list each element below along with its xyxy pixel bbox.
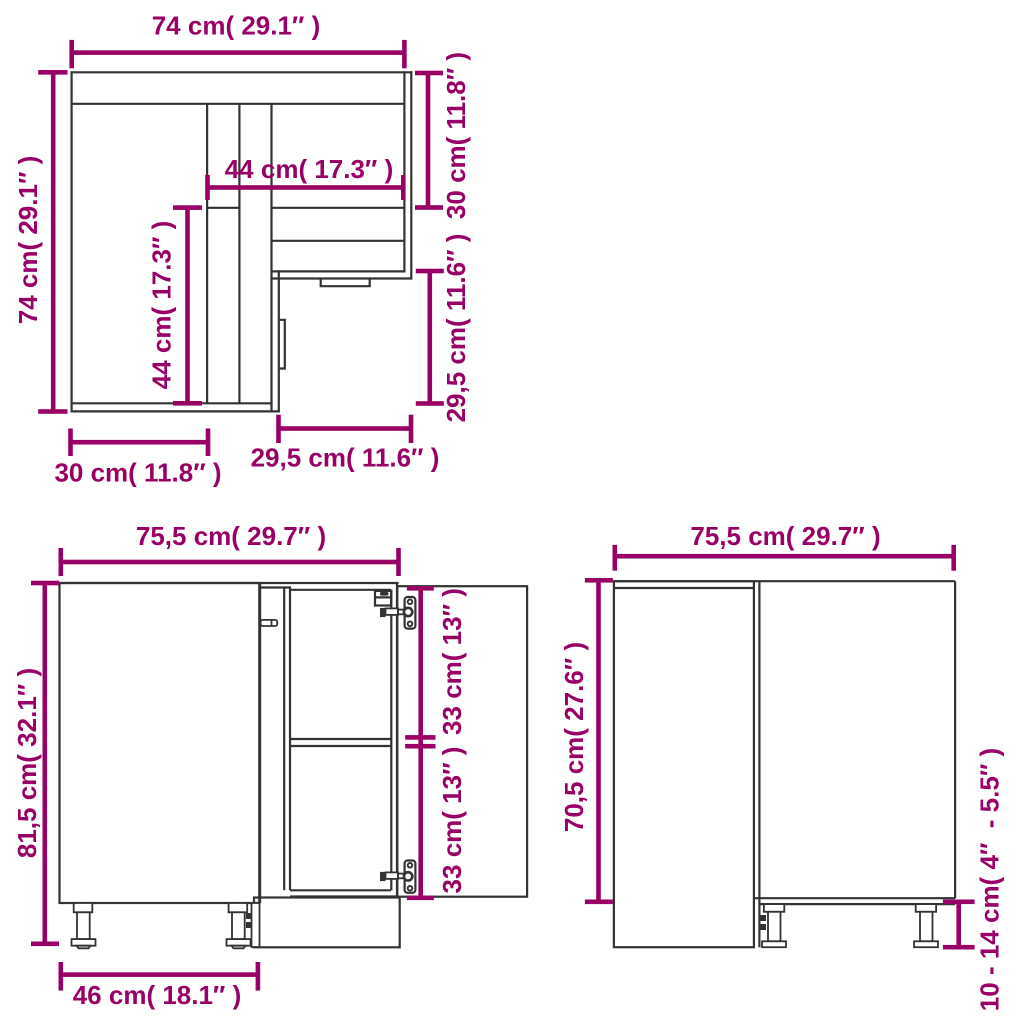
svg-text:10 - 14 cm( 4″ - 5.5″ ): 10 - 14 cm( 4″ - 5.5″ ) [975,748,1005,1011]
svg-text:46 cm( 18.1″ ): 46 cm( 18.1″ ) [73,980,242,1010]
svg-text:74 cm( 29.1″ ): 74 cm( 29.1″ ) [13,156,43,325]
svg-text:44 cm( 17.3″ ): 44 cm( 17.3″ ) [147,221,177,390]
svg-text:81,5 cm( 32.1″ ): 81,5 cm( 32.1″ ) [12,668,42,858]
svg-text:75,5 cm( 29.7″ ): 75,5 cm( 29.7″ ) [690,521,880,551]
svg-text:29,5 cm( 11.6″ ): 29,5 cm( 11.6″ ) [441,234,471,423]
svg-text:29,5 cm( 11.6″ ): 29,5 cm( 11.6″ ) [251,443,440,473]
svg-text:74 cm( 29.1″ ): 74 cm( 29.1″ ) [152,11,321,41]
svg-text:75,5 cm( 29.7″ ): 75,5 cm( 29.7″ ) [136,521,326,551]
svg-text:33 cm( 13″ ): 33 cm( 13″ ) [437,588,467,735]
svg-text:70,5 cm( 27.6″ ): 70,5 cm( 27.6″ ) [559,642,589,832]
svg-text:33 cm( 13″ ): 33 cm( 13″ ) [437,747,467,894]
svg-text:44 cm( 17.3″ ): 44 cm( 17.3″ ) [225,154,394,184]
svg-text:30 cm( 11.8″ ): 30 cm( 11.8″ ) [54,458,221,488]
svg-text:30 cm( 11.8″ ): 30 cm( 11.8″ ) [441,52,471,219]
